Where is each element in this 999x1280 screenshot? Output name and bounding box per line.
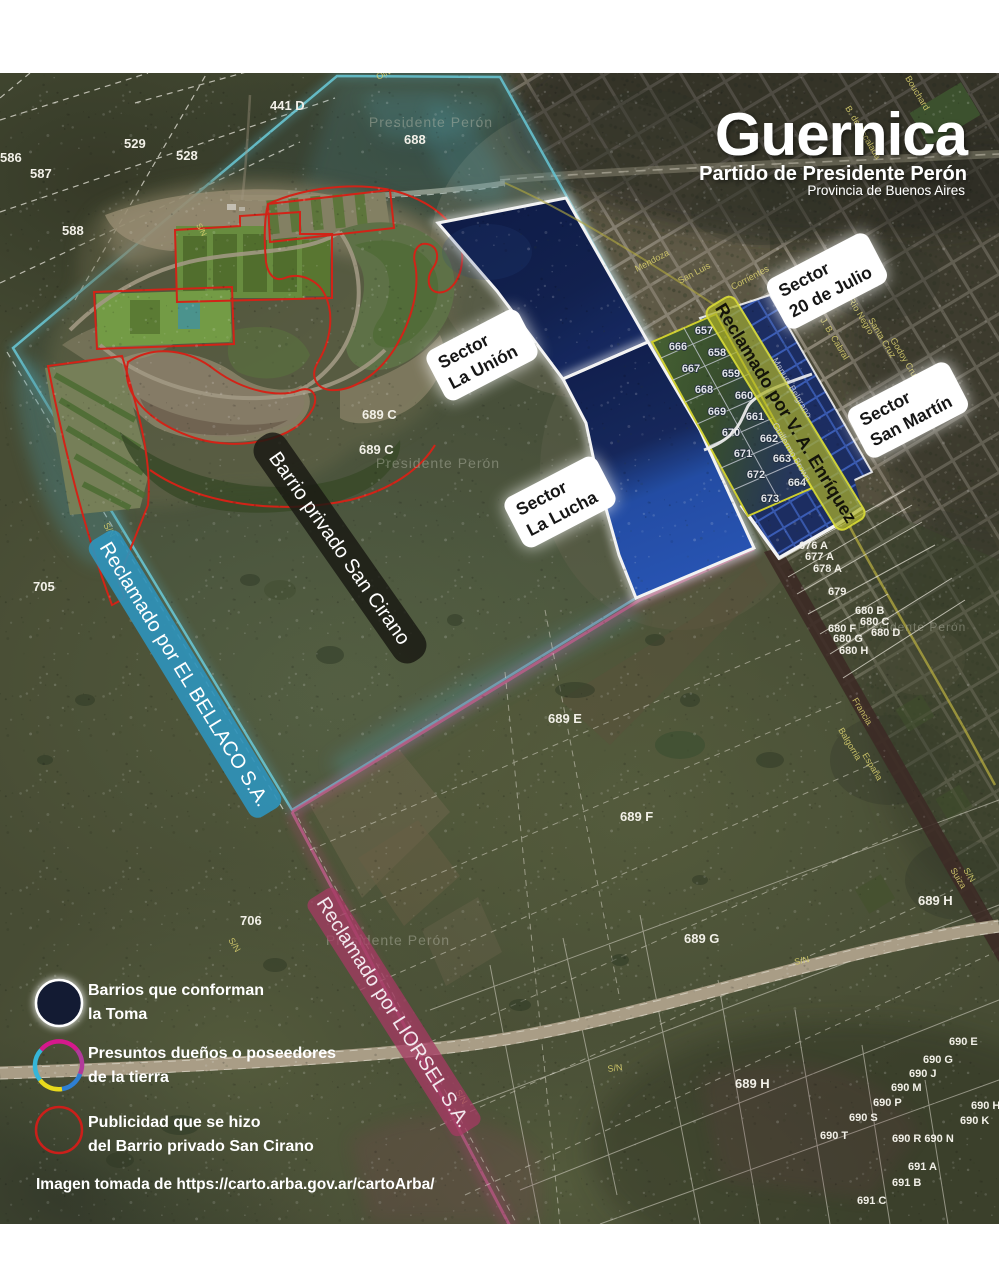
svg-text:690 J: 690 J xyxy=(909,1068,937,1080)
svg-text:690 M: 690 M xyxy=(891,1082,922,1094)
svg-text:de la tierra: de la tierra xyxy=(88,1069,169,1086)
svg-text:689 C: 689 C xyxy=(362,407,397,422)
svg-text:Imagen tomada de https://carto: Imagen tomada de https://carto.arba.gov.… xyxy=(36,1176,435,1193)
svg-text:la Toma: la Toma xyxy=(88,1006,147,1023)
svg-text:679: 679 xyxy=(828,586,846,598)
svg-text:706: 706 xyxy=(240,913,262,928)
svg-text:690 G: 690 G xyxy=(923,1054,953,1066)
svg-text:588: 588 xyxy=(62,223,84,238)
svg-text:690 R 690 N: 690 R 690 N xyxy=(892,1133,954,1145)
svg-text:Provincia de Buenos Aires: Provincia de Buenos Aires xyxy=(807,183,965,198)
svg-text:Barrios que conforman: Barrios que conforman xyxy=(88,982,264,999)
svg-text:689 E: 689 E xyxy=(548,711,582,726)
svg-text:688: 688 xyxy=(404,132,426,147)
svg-text:689 H: 689 H xyxy=(918,893,953,908)
svg-text:690 H: 690 H xyxy=(971,1100,999,1112)
svg-text:689 C: 689 C xyxy=(359,442,394,457)
svg-text:680 D: 680 D xyxy=(871,627,900,639)
svg-text:689 H: 689 H xyxy=(735,1076,770,1091)
svg-text:691 C: 691 C xyxy=(857,1195,886,1207)
svg-text:del Barrio privado San Cirano: del Barrio privado San Cirano xyxy=(88,1138,314,1155)
svg-text:587: 587 xyxy=(30,166,52,181)
svg-text:529: 529 xyxy=(124,136,146,151)
svg-text:Guernica: Guernica xyxy=(715,101,969,168)
svg-text:Presidente Perón: Presidente Perón xyxy=(369,114,493,130)
svg-text:S/N: S/N xyxy=(607,1062,623,1074)
svg-text:690 S: 690 S xyxy=(849,1112,878,1124)
svg-text:678 A: 678 A xyxy=(813,563,842,575)
svg-text:586: 586 xyxy=(0,150,22,165)
svg-text:690 E: 690 E xyxy=(949,1036,978,1048)
svg-text:689 F: 689 F xyxy=(620,809,653,824)
svg-text:689 G: 689 G xyxy=(684,931,719,946)
svg-text:680 H: 680 H xyxy=(839,645,868,657)
svg-text:Partido de Presidente Perón: Partido de Presidente Perón xyxy=(699,163,967,185)
svg-text:690 K: 690 K xyxy=(960,1115,989,1127)
svg-text:Publicidad que se hizo: Publicidad que se hizo xyxy=(88,1114,261,1131)
svg-text:690 P: 690 P xyxy=(873,1097,902,1109)
svg-text:Presidente Perón: Presidente Perón xyxy=(376,455,500,471)
svg-text:691 A: 691 A xyxy=(908,1161,937,1173)
svg-text:705: 705 xyxy=(33,579,55,594)
svg-text:441 D: 441 D xyxy=(270,98,305,113)
svg-text:680 G: 680 G xyxy=(833,633,863,645)
svg-text:691 B: 691 B xyxy=(892,1177,921,1189)
svg-text:677 A: 677 A xyxy=(805,551,834,563)
svg-text:528: 528 xyxy=(176,148,198,163)
svg-text:Presuntos dueños o poseedores: Presuntos dueños o poseedores xyxy=(88,1045,336,1062)
svg-text:690 T: 690 T xyxy=(820,1130,848,1142)
